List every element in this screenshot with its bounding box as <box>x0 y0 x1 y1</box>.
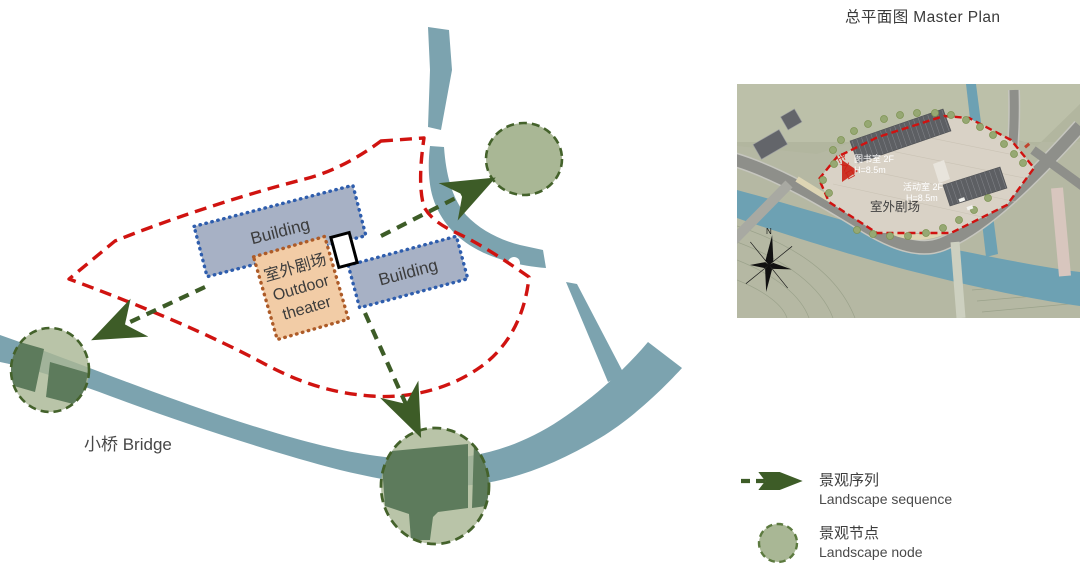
stream-upper <box>428 27 452 130</box>
sequence-arrow-to-left-node <box>98 287 205 337</box>
legend-sequence-en: Landscape sequence <box>819 490 952 508</box>
footpath-bridge-right <box>1057 188 1065 276</box>
dashed-arrow-icon <box>737 472 811 490</box>
bridge-label: 小桥 Bridge <box>84 435 172 454</box>
legend-item-sequence: 景观序列 Landscape sequence <box>737 472 952 508</box>
landscape-sequence-swatch <box>737 472 819 490</box>
landscape-node-top-right <box>486 123 562 195</box>
node-circle-icon <box>737 521 811 565</box>
landscape-node-swatch <box>737 521 819 565</box>
library-label: 图书室 2F <box>854 153 895 164</box>
legend-item-node: 景观节点 Landscape node <box>737 521 952 565</box>
river-tributary <box>566 282 624 382</box>
library-height: H=8.5m <box>854 165 886 175</box>
legend-sequence-zh: 景观序列 <box>819 472 952 490</box>
landscape-node-bottom <box>381 428 514 544</box>
sequence-arrow-to-bottom-node <box>365 313 418 431</box>
footpath-bridge-bottom <box>955 242 961 318</box>
legend-node-en: Landscape node <box>819 543 923 561</box>
plan-theater-label: 室外剧场 <box>870 199 920 214</box>
concept-diagram: Building 室外剧场 Outdoor theater Building 小… <box>0 0 730 582</box>
building-2: Building <box>348 236 468 307</box>
legend-node-zh: 景观节点 <box>819 525 923 543</box>
main-river <box>0 335 682 486</box>
page-title: 总平面图 Master Plan <box>845 5 1000 27</box>
compass-north-label: N <box>766 227 772 236</box>
legend: 景观序列 Landscape sequence 景观节点 Landscape n… <box>737 472 952 565</box>
master-plan-image: 主入口 图书室 2F H=8.5m 活动室 2F H=8.5m 室外剧场 N <box>737 84 1080 318</box>
activity-label: 活动室 2F <box>903 181 944 192</box>
